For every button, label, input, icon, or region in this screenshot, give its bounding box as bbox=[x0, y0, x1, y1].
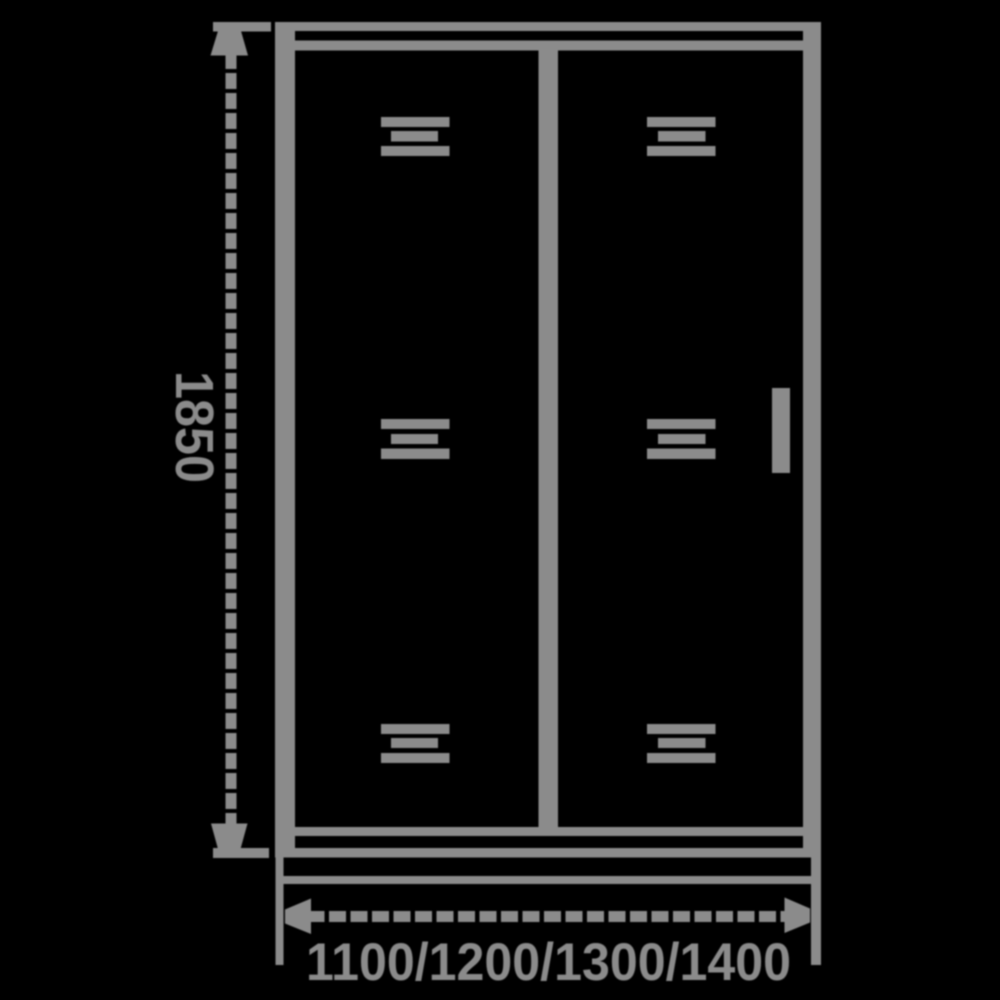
svg-text:1100/1200/1300/1400: 1100/1200/1300/1400 bbox=[306, 933, 791, 992]
svg-text:1850: 1850 bbox=[164, 371, 224, 483]
